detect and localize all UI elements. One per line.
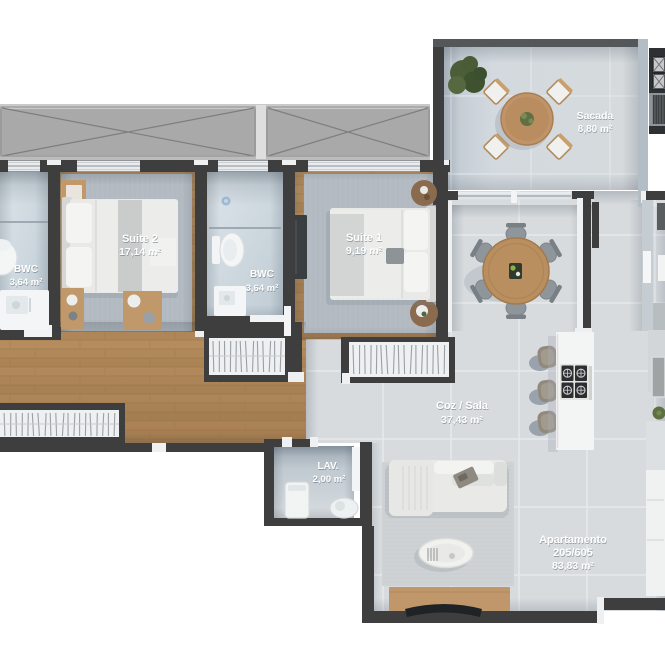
svg-text:2,00 m²: 2,00 m² — [313, 474, 346, 485]
svg-text:8,80 m²: 8,80 m² — [578, 124, 613, 135]
svg-text:Coz / Sala: Coz / Sala — [436, 400, 489, 412]
svg-text:BWC: BWC — [14, 264, 38, 275]
svg-text:205/605: 205/605 — [553, 547, 593, 559]
svg-text:3,64 m²: 3,64 m² — [10, 277, 43, 288]
svg-text:3,64 m²: 3,64 m² — [246, 283, 279, 294]
svg-text:37,43 m²: 37,43 m² — [441, 414, 484, 426]
svg-text:Apartamento: Apartamento — [539, 534, 607, 546]
svg-text:17,14 m²: 17,14 m² — [119, 246, 162, 258]
svg-text:9,19 m²: 9,19 m² — [346, 245, 383, 257]
svg-text:BWC: BWC — [250, 269, 274, 280]
svg-text:LAV.: LAV. — [317, 461, 338, 472]
svg-text:Sacada: Sacada — [577, 110, 614, 122]
svg-text:83,83 m²: 83,83 m² — [552, 560, 595, 572]
svg-text:Suite 1: Suite 1 — [346, 232, 382, 244]
svg-text:Suite 2: Suite 2 — [122, 233, 158, 245]
